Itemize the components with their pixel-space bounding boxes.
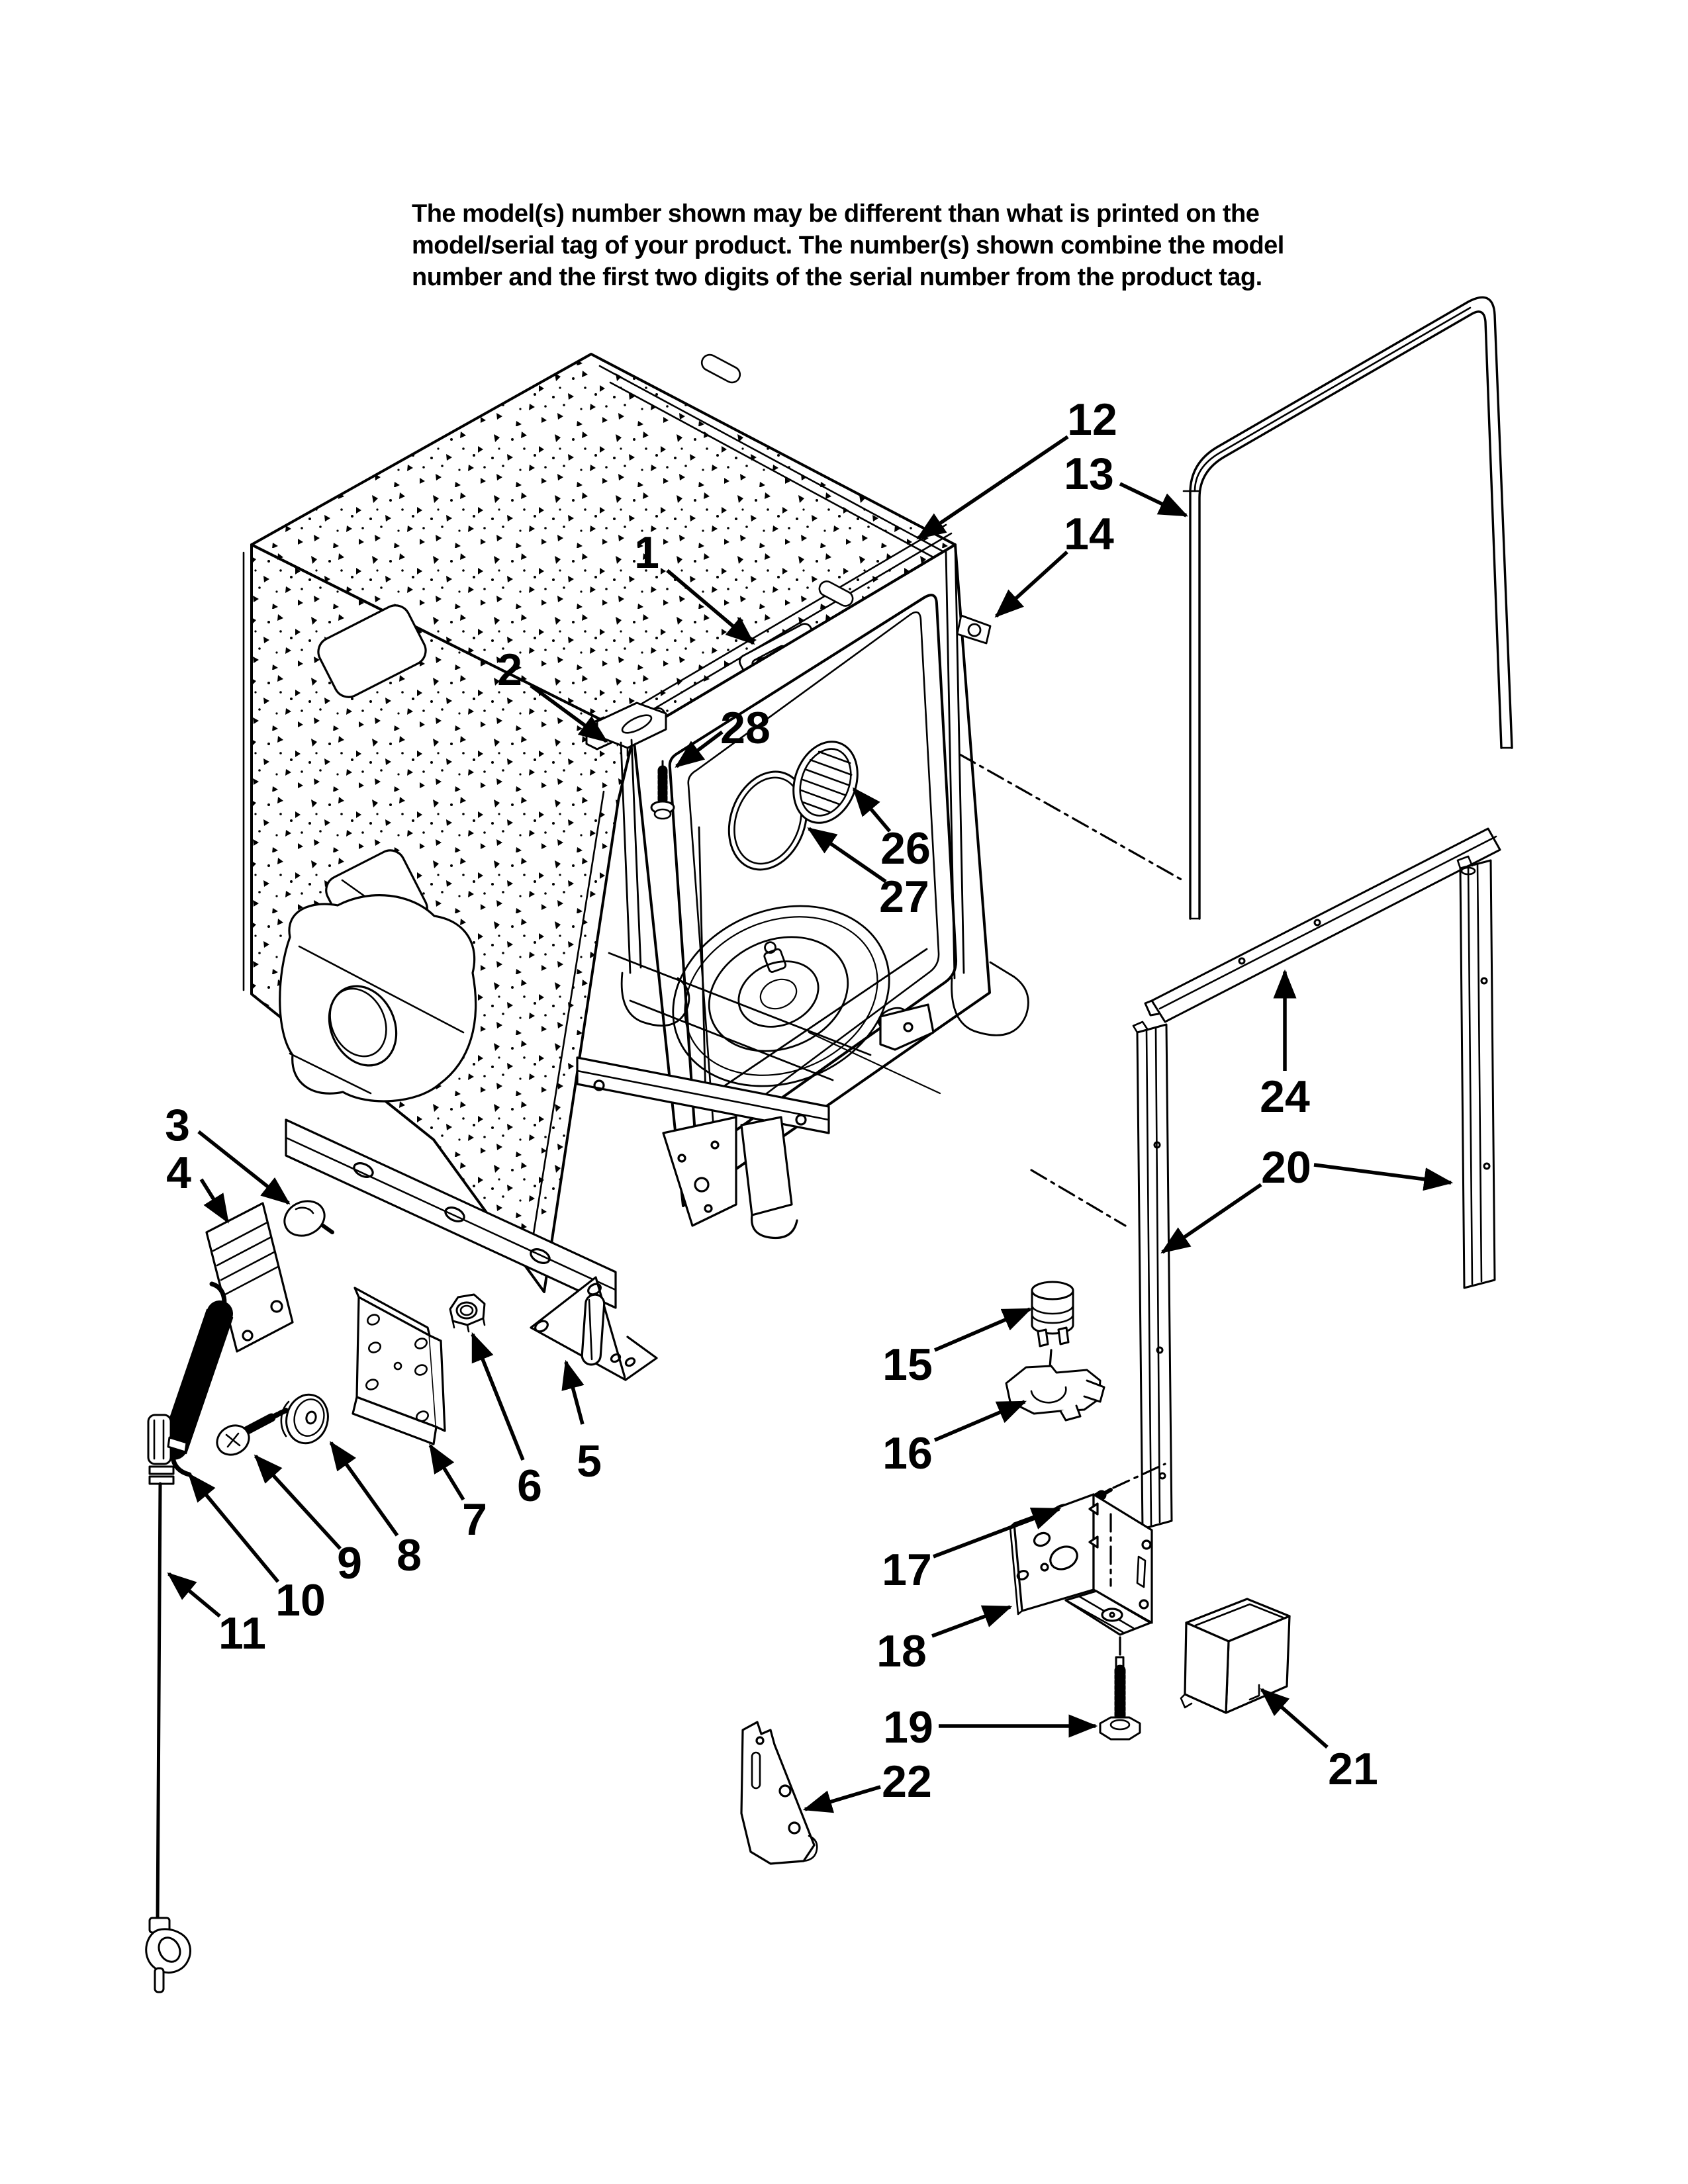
callout-14: 14 [1064,509,1114,559]
callout-1: 1 [634,527,659,578]
thermostat-bracket-clip [1006,1366,1104,1420]
access-panel-rail-right [1458,856,1495,1288]
callout-2: 2 [497,645,522,695]
leader-arrow-21 [1262,1690,1327,1747]
leader-arrow-14 [996,552,1067,616]
callout-4: 4 [166,1148,191,1198]
leader-arrow-11 [169,1574,220,1616]
callout-28: 28 [720,703,771,753]
leader-arrow-7 [430,1445,463,1500]
callout-17: 17 [882,1545,932,1595]
leader-arrow-4 [201,1179,228,1222]
access-panel-rail-left [1133,1022,1172,1529]
callout-11: 11 [218,1608,266,1659]
callout-27: 27 [879,872,929,922]
mounting-plate [353,1288,445,1444]
callout-10: 10 [275,1575,326,1625]
leader-arrow-12 [918,437,1068,538]
callout-6: 6 [517,1461,542,1511]
callout-8: 8 [397,1530,422,1580]
callout-19: 19 [883,1702,933,1752]
callout-16: 16 [882,1428,933,1479]
leader-arrow-20 [1162,1185,1261,1252]
callout-15: 15 [882,1340,933,1390]
motor-mount-bracket [1010,1494,1152,1635]
roller-wheel [281,1390,333,1448]
note-block: The model(s) number shown may be differe… [412,200,1284,291]
leader-arrow-15 [935,1309,1030,1350]
leader-arrow-8 [331,1443,397,1535]
mount-screw [1100,1637,1140,1739]
parts-diagram-page: The model(s) number shown may be differe… [0,0,1688,2184]
callout-22: 22 [882,1756,932,1807]
leader-arrow-13 [1120,484,1186,516]
leader-arrow-5 [566,1362,583,1424]
leader-arrow-10 [189,1475,278,1582]
callout-18: 18 [876,1626,927,1676]
leader-arrow-20 [1314,1165,1451,1183]
leader-arrow-16 [935,1402,1025,1440]
note-line-1: The model(s) number shown may be differe… [412,200,1259,228]
callout-12: 12 [1067,394,1117,445]
wire-cover-channel [1181,1599,1289,1713]
hex-nut [450,1295,485,1332]
note-line-2: model/serial tag of your product. The nu… [412,232,1284,259]
callout-21: 21 [1328,1744,1378,1794]
callout-9: 9 [337,1538,362,1588]
door-gasket [1184,297,1512,919]
leader-arrow-22 [805,1787,880,1809]
hi-limit-thermostat [1032,1282,1073,1367]
callout-24: 24 [1260,1071,1310,1122]
leader-arrow-9 [256,1456,340,1549]
leader-arrow-6 [473,1334,523,1460]
diagram-canvas: The model(s) number shown may be differe… [0,0,1688,2184]
shoulder-screw [212,1410,286,1461]
leader-arrow-18 [932,1607,1010,1636]
callout-26: 26 [880,823,931,874]
callout-13: 13 [1064,449,1114,499]
door-cable-link [146,1415,191,1992]
leader-arrow-3 [199,1132,289,1203]
callout-3: 3 [165,1100,190,1150]
callout-5: 5 [577,1436,602,1486]
note-line-3: number and the first two digits of the s… [412,263,1262,291]
callout-20: 20 [1261,1142,1311,1193]
side-mount-bracket [741,1722,817,1864]
corner-bracket-roller [531,1277,657,1380]
callout-7: 7 [462,1494,487,1545]
